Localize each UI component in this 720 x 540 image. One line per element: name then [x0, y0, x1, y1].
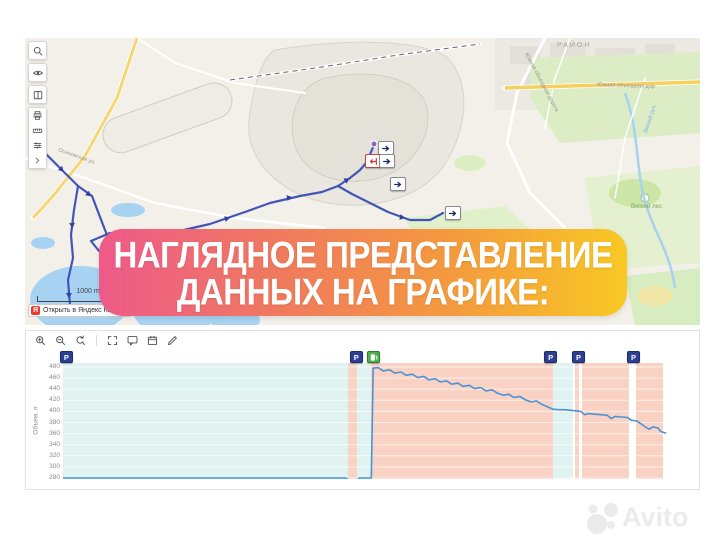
- book-icon: [32, 89, 44, 101]
- parking-marker[interactable]: P: [60, 351, 73, 363]
- y-tick-label: 340: [34, 441, 60, 448]
- parking-glyph: P: [64, 353, 69, 362]
- direction-arrow-icon: [448, 209, 458, 218]
- banner-line-1: НАГЛЯДНОЕ ПРЕДСТАВЛЕНИЕ: [113, 233, 612, 274]
- avito-text: Avito: [622, 502, 689, 533]
- screenshot-root: РАЙОНЮжная объездная дорогаЮжная объездн…: [0, 0, 720, 540]
- parking-glyph: P: [631, 353, 636, 362]
- avito-logo-icon: [584, 497, 620, 537]
- y-tick-label: 320: [34, 452, 60, 459]
- print-icon: [32, 110, 43, 121]
- zoom-out-icon: [54, 334, 67, 347]
- fuel-level-line: [63, 351, 696, 479]
- map-direction-marker[interactable]: [379, 154, 395, 168]
- zoom-in-icon: [34, 334, 47, 347]
- calendar-icon: [146, 334, 159, 347]
- stop-arrow-icon: [368, 157, 378, 166]
- chart-tool-zoom-in[interactable]: [34, 334, 47, 347]
- zoom-reset-icon: [74, 334, 87, 347]
- eye-icon: [32, 67, 44, 79]
- map-direction-marker[interactable]: [445, 206, 461, 220]
- y-tick-label: 420: [34, 396, 60, 403]
- map-tool-search[interactable]: [28, 41, 47, 60]
- y-tick-label: 280: [34, 474, 60, 481]
- parking-marker[interactable]: P: [350, 351, 363, 363]
- y-tick-label: 380: [34, 419, 60, 426]
- parking-marker[interactable]: P: [544, 351, 557, 363]
- search-icon: [32, 45, 44, 57]
- map-tool-book[interactable]: [28, 85, 47, 104]
- y-tick-label: 460: [34, 374, 60, 381]
- promo-banner: НАГЛЯДНОЕ ПРЕДСТАВЛЕНИЕ ДАННЫХ НА ГРАФИК…: [99, 229, 627, 316]
- chart-panel: Объем, л 4804604404204003803603403203002…: [25, 330, 700, 490]
- chart-tool-zoom-out[interactable]: [54, 334, 67, 347]
- map-tool-print[interactable]: [29, 108, 46, 123]
- plot-area[interactable]: PPPPP: [63, 351, 696, 479]
- y-tick-label: 480: [34, 363, 60, 370]
- fuel-pump-icon: [369, 353, 378, 362]
- parking-glyph: P: [576, 353, 581, 362]
- direction-arrow-icon: [381, 144, 391, 153]
- y-tick-label: 400: [34, 407, 60, 414]
- parking-marker[interactable]: P: [572, 351, 585, 363]
- y-tick-label: 300: [34, 463, 60, 470]
- direction-arrow-icon: [382, 157, 392, 166]
- parking-glyph: P: [548, 353, 553, 362]
- parking-glyph: P: [354, 353, 359, 362]
- direction-arrow-icon: [393, 180, 403, 189]
- comment-icon: [126, 334, 139, 347]
- tune-icon: [32, 140, 43, 151]
- y-tick-label: 440: [34, 385, 60, 392]
- edit-icon: [166, 334, 179, 347]
- banner-line-2: ДАННЫХ НА ГРАФИКЕ:: [177, 270, 549, 311]
- map-label: Вяский лес: [631, 203, 662, 210]
- chart-tool-zoom-reset[interactable]: [74, 334, 87, 347]
- toolbar-separator: [96, 335, 97, 346]
- yandex-pin-icon: Я: [31, 306, 40, 315]
- map-tool-chevron-right[interactable]: [29, 153, 46, 168]
- chevron-right-icon: [32, 155, 43, 166]
- ruler-icon: [32, 125, 43, 136]
- parking-marker[interactable]: P: [627, 351, 640, 363]
- chart-tool-edit[interactable]: [166, 334, 179, 347]
- chart-toolbar: [34, 333, 179, 347]
- map-direction-marker[interactable]: [390, 177, 406, 191]
- chart-tool-calendar[interactable]: [146, 334, 159, 347]
- map-tool-ruler[interactable]: [29, 123, 46, 138]
- map-tool-eye[interactable]: [28, 63, 47, 82]
- map-direction-marker[interactable]: [378, 141, 394, 155]
- map-tool-group: [28, 107, 47, 169]
- route-end-point: [371, 141, 377, 147]
- y-tick-label: 360: [34, 430, 60, 437]
- map-tool-tune[interactable]: [29, 138, 46, 153]
- chart-tool-fullscreen[interactable]: [106, 334, 119, 347]
- avito-watermark: Avito: [584, 496, 716, 538]
- map-toolbar: [28, 41, 47, 169]
- chart-tool-comment[interactable]: [126, 334, 139, 347]
- fullscreen-icon: [106, 334, 119, 347]
- map-label: РАЙОН: [557, 40, 591, 49]
- fueling-marker[interactable]: [367, 351, 380, 363]
